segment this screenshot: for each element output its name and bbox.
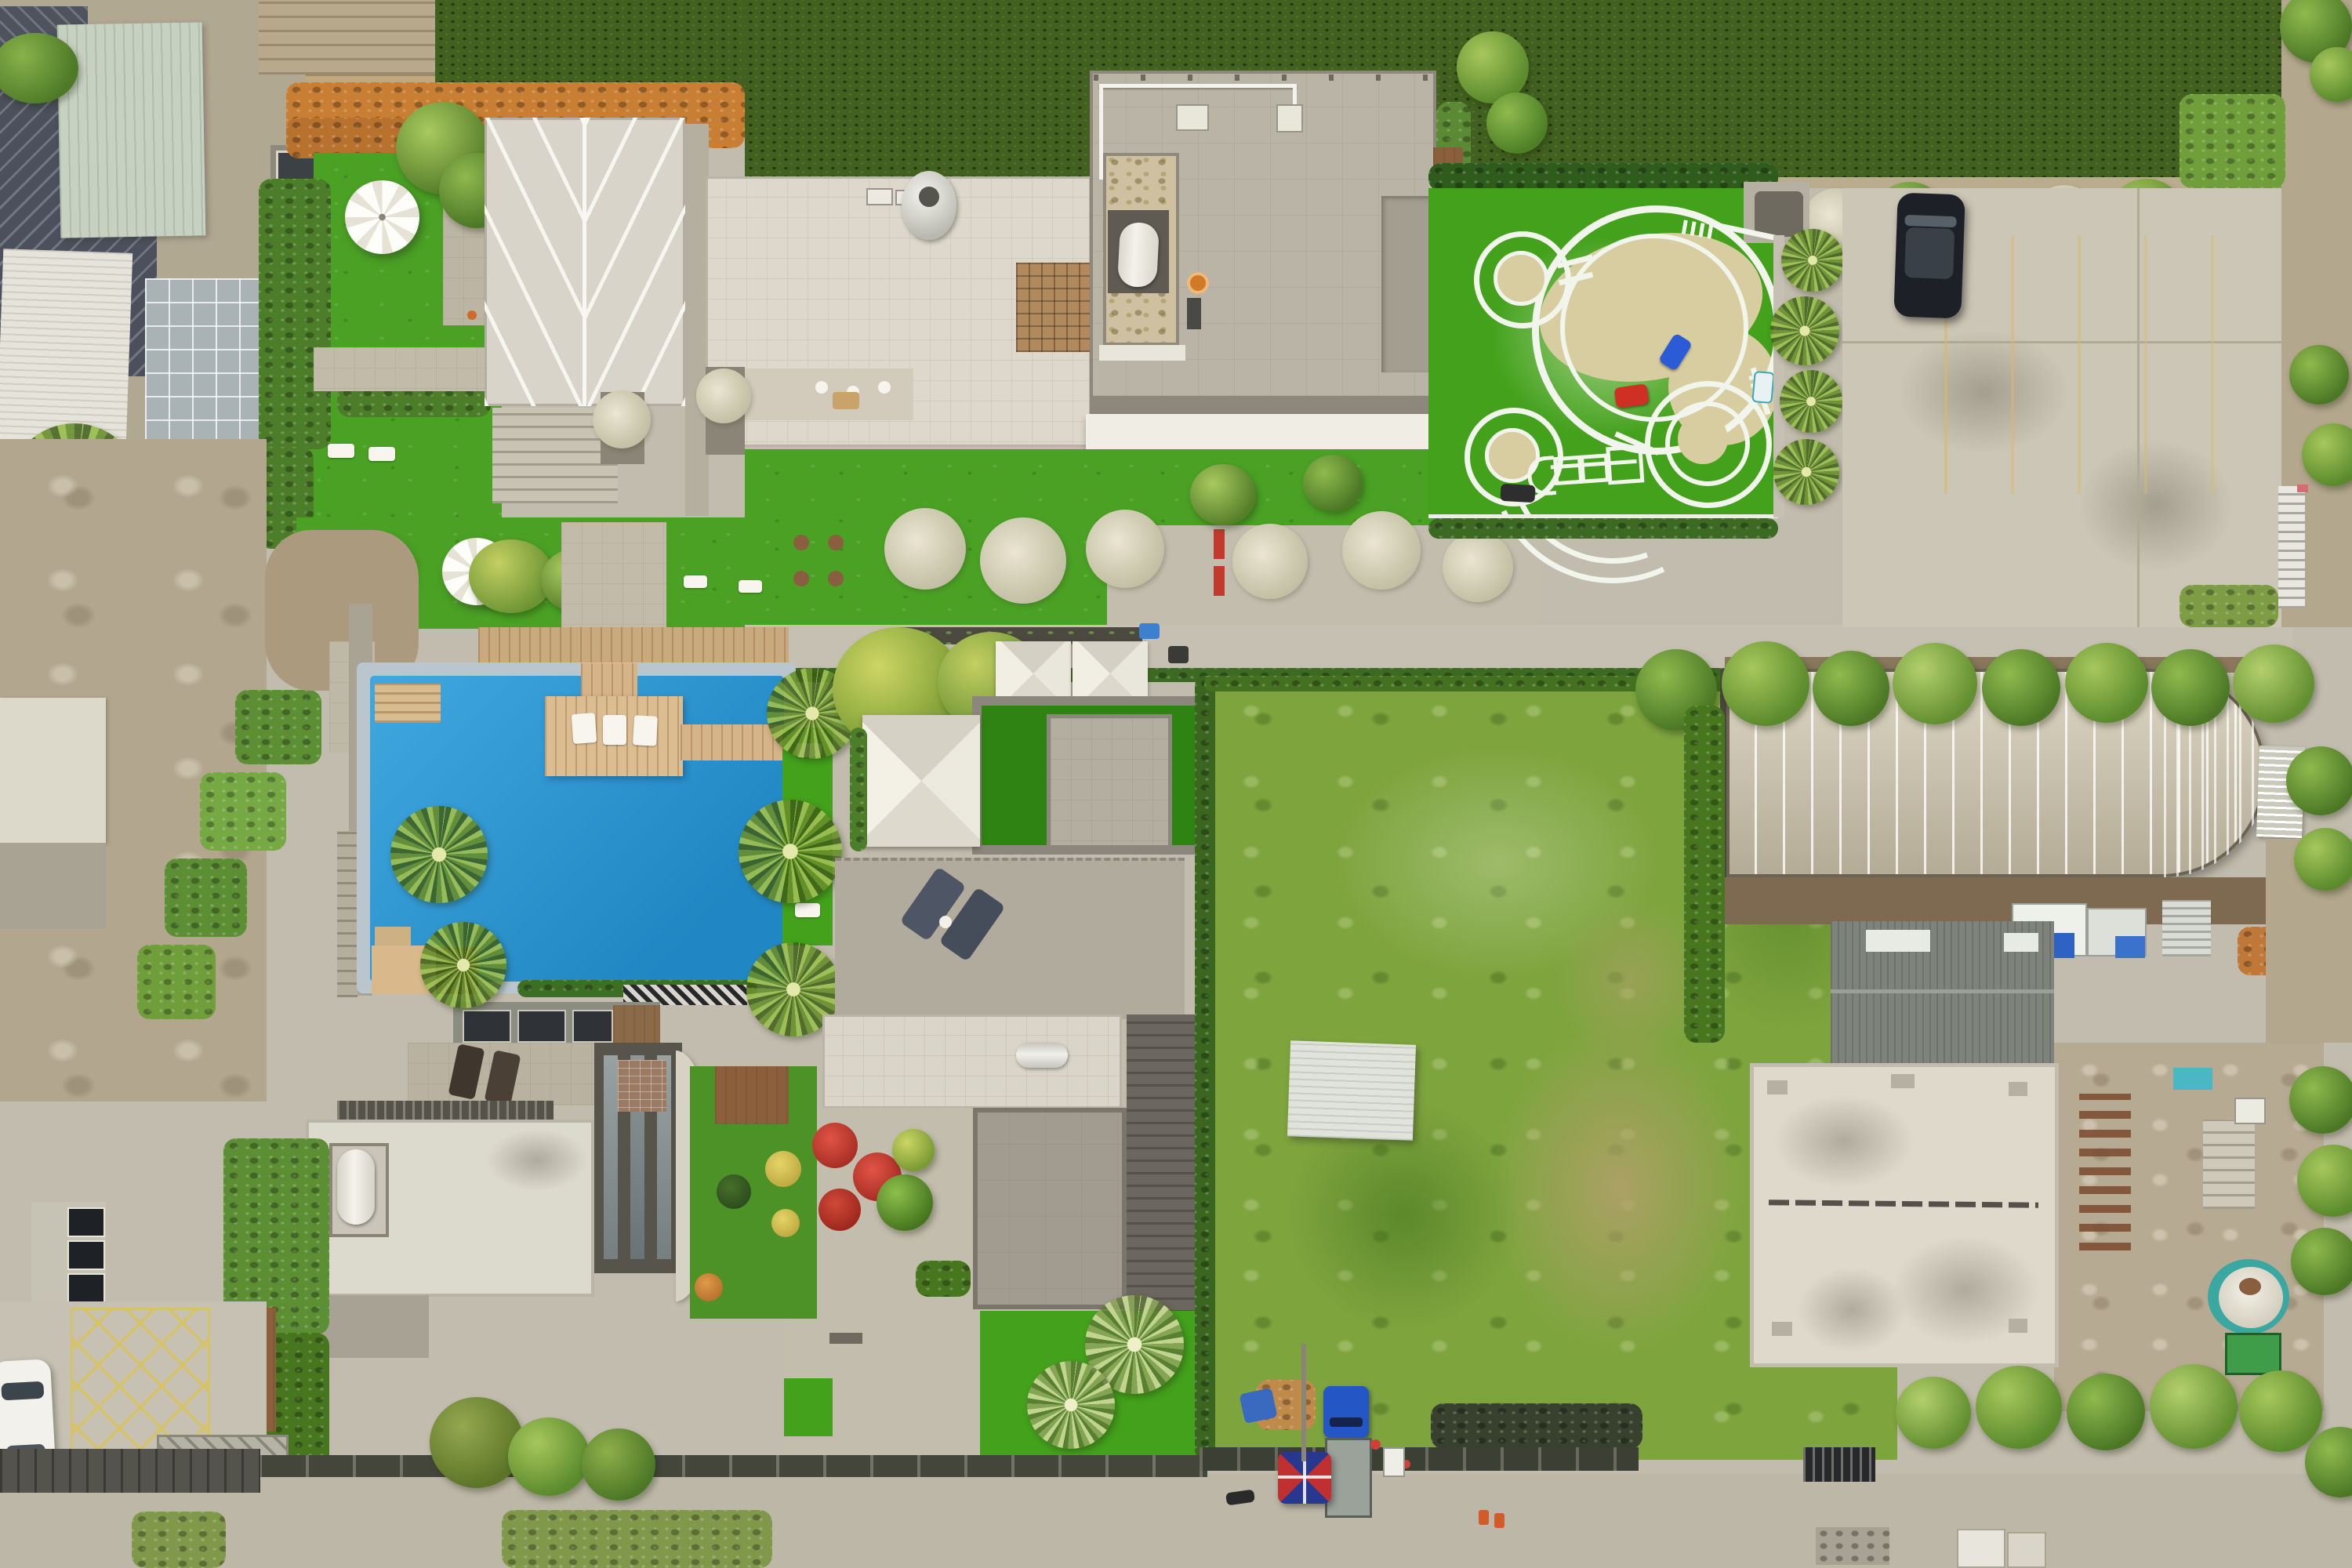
stool [878, 381, 891, 394]
red-flower-bed [818, 1189, 861, 1231]
ribbed-pavilion-roof [485, 118, 685, 406]
rubber-mat [1755, 191, 1803, 237]
red-bench [1214, 529, 1225, 559]
frame-box [1580, 453, 1610, 483]
stall-line [2078, 235, 2081, 494]
roof-ledge [1099, 345, 1185, 361]
solar-panel [463, 1010, 511, 1043]
tank-debris [2239, 1278, 2261, 1295]
bare-tree [1342, 511, 1421, 590]
pink-item [2297, 485, 2308, 492]
tree [1893, 643, 1977, 724]
stall-line [2211, 235, 2214, 494]
tiled-roof [822, 1014, 1122, 1109]
tree [1722, 641, 1809, 726]
pier-arm [681, 724, 784, 760]
white-shed-small [2007, 1532, 2046, 1568]
vent [1891, 1074, 1915, 1088]
roof-recess [1381, 196, 1433, 372]
street-weeds [502, 1510, 772, 1568]
climbing-frame [1526, 439, 1654, 496]
pavilion-ribs [585, 118, 685, 406]
solar-panel [67, 1240, 105, 1270]
tree [2233, 644, 2314, 723]
tree [2294, 828, 2352, 891]
white-wall [0, 698, 106, 843]
pipe-run [1099, 84, 1297, 88]
fence-hedge [1684, 706, 1725, 1043]
teal-tarp [2173, 1068, 2212, 1090]
tree [1190, 464, 1256, 525]
truck-cab [1323, 1386, 1369, 1438]
patio-umbrella [345, 180, 419, 254]
pool-steps [375, 684, 441, 723]
palm-tree [1770, 296, 1839, 365]
roadside-bushes [200, 772, 286, 851]
table [833, 392, 859, 409]
dark-walk [0, 1449, 260, 1493]
tree [1486, 93, 1548, 154]
tree [2067, 1374, 2145, 1450]
tree [2291, 1228, 2352, 1295]
white-corrugated-roof [0, 249, 132, 445]
parked-sedan [1893, 193, 1965, 319]
round-planter-orange [695, 1273, 723, 1301]
expansion-joint [2137, 188, 2140, 627]
picnic-table [793, 535, 809, 550]
frame-box [1553, 456, 1583, 485]
stain [1797, 1267, 1907, 1353]
playground-hedge [1428, 518, 1778, 539]
stain [486, 1129, 588, 1192]
hedge [850, 728, 867, 851]
green-crate [2225, 1333, 2281, 1375]
roof-ridge [1831, 989, 2054, 993]
stain [1897, 329, 2070, 455]
concrete-slabs [2203, 1120, 2255, 1209]
white-stack [2278, 486, 2305, 608]
drain-grate [1803, 1447, 1875, 1482]
bush [877, 1174, 933, 1231]
roadside-bushes [137, 945, 216, 1019]
expansion-joint [1842, 341, 2281, 343]
red-bench [1214, 566, 1225, 596]
white-shed [1287, 1040, 1416, 1141]
roof-bin [1187, 298, 1201, 329]
horizontal-tank [1016, 1043, 1068, 1068]
roadside-bushes [235, 690, 321, 764]
junction-box [1176, 104, 1209, 131]
round-tank [2219, 1267, 2283, 1328]
sun-lounger [572, 713, 597, 744]
window-slit [604, 1055, 618, 1259]
vent [1772, 1322, 1792, 1336]
bare-tree [1232, 524, 1308, 599]
meadow-hedge-west [1195, 676, 1215, 1460]
bare-tree [593, 390, 651, 448]
junction-box [1276, 104, 1303, 132]
hedge [259, 179, 331, 449]
bare-tree [980, 517, 1066, 604]
tree [1813, 651, 1889, 726]
round-planter-yellow [765, 1151, 801, 1187]
stool [815, 381, 828, 394]
tank-cap [919, 187, 939, 207]
truck-box [1325, 1438, 1372, 1518]
tree [1982, 649, 2060, 726]
pavilion-ribs [485, 118, 585, 406]
pipe-run [1099, 84, 1103, 180]
car-roof [1904, 227, 1955, 279]
palm-tree [390, 806, 488, 903]
brown-plant-rows [2079, 1094, 2131, 1250]
skylight-panel [2004, 933, 2038, 952]
stall-line [2011, 235, 2014, 494]
street-weeds [132, 1512, 226, 1568]
solar-panel [67, 1273, 105, 1303]
aerial-photo [0, 0, 2352, 1568]
lawn-lounger [368, 447, 395, 461]
picnic-table [828, 571, 844, 586]
lawn-lounger [328, 444, 354, 458]
brick-section [618, 1060, 666, 1112]
bench [829, 1333, 862, 1344]
white-shed-small [1957, 1529, 2005, 1568]
ac-unit [866, 188, 893, 205]
roadside-bushes [165, 858, 247, 937]
traffic-cone [1479, 1510, 1489, 1525]
bare-tree [1443, 532, 1513, 602]
solar-panel [67, 1207, 105, 1237]
wood-planter [715, 1066, 789, 1124]
tree [582, 1428, 655, 1501]
turf-patch [784, 1378, 833, 1436]
courtyard-block [1051, 718, 1168, 845]
palm-tree [1773, 439, 1839, 505]
toy-car-black [1500, 484, 1535, 503]
traffic-cone [1494, 1513, 1504, 1528]
roundabout-sand [1494, 251, 1548, 306]
roadside-green [2180, 94, 2285, 188]
side-stairs [337, 831, 358, 997]
rubble-pile [1816, 1527, 1889, 1565]
tree [2065, 643, 2148, 723]
apron-planter [916, 1261, 971, 1297]
lawn-lounger [684, 575, 707, 588]
roof-deck [835, 858, 1185, 1019]
roof-crack [1769, 1200, 2038, 1208]
round-planter-yellow [771, 1209, 800, 1237]
orange-toy [467, 310, 477, 320]
vent [2009, 1319, 2027, 1333]
tree [2151, 649, 2230, 726]
person-red [1370, 1439, 1381, 1450]
solar-panel [517, 1010, 566, 1043]
tree [2286, 746, 2352, 815]
palm-tree [420, 922, 506, 1008]
pergola-grid [1016, 263, 1090, 352]
tree [2289, 345, 2349, 405]
windshield [1, 1381, 44, 1401]
stair-strip [1127, 1014, 1199, 1312]
street-fence [1200, 1447, 1639, 1471]
solar-panel [572, 1010, 613, 1043]
paver-path [314, 347, 489, 391]
roof-edge-ticks [1094, 74, 1432, 81]
bare-tree [696, 368, 751, 423]
sun-lounger [603, 715, 626, 745]
gray-roof-b [973, 1108, 1127, 1309]
vent [1767, 1080, 1788, 1094]
tree [430, 1397, 524, 1488]
lawn-lounger [739, 580, 762, 593]
bare-tree [1086, 510, 1164, 588]
gray-roof-strip [0, 843, 106, 929]
white-sign [2234, 1098, 2266, 1124]
white-signboard [1383, 1447, 1405, 1477]
pavilion-spine [583, 118, 586, 406]
deck-table [939, 916, 952, 928]
roof-tank [337, 1149, 375, 1225]
tree [2239, 1370, 2322, 1452]
truck-windshield [1330, 1417, 1363, 1427]
red-flower-bed [812, 1123, 858, 1168]
white-tank [1117, 222, 1160, 289]
street-hedge [1431, 1403, 1642, 1449]
palm-tree [1781, 229, 1844, 292]
round-planter-dark [717, 1174, 751, 1209]
toy-car-white [1751, 371, 1774, 404]
utility-pole [1301, 1344, 1306, 1461]
orange-cable-coil [1187, 272, 1209, 294]
palm-tree [1780, 370, 1842, 433]
windshield [1904, 215, 1956, 227]
skylight-panel [1866, 930, 1930, 952]
pier-neck [581, 663, 637, 699]
picnic-table [828, 535, 844, 550]
palm-tree [1027, 1361, 1115, 1449]
pyramid-roof-large [862, 715, 980, 847]
canopy [1086, 414, 1439, 454]
vent [2009, 1082, 2027, 1096]
stone-strip [259, 0, 439, 74]
weathered-white-roof [1750, 1063, 2059, 1367]
tree [2289, 1066, 2352, 1134]
weeds [2180, 585, 2278, 627]
stall-line [2144, 235, 2147, 494]
sun-lounger [633, 715, 658, 746]
tree [1896, 1377, 1971, 1449]
bare-tree [884, 508, 966, 590]
tree [1303, 455, 1363, 511]
tree [1976, 1366, 2062, 1449]
playground-hedge [1428, 163, 1778, 191]
picnic-table [793, 571, 809, 586]
tree [508, 1417, 590, 1496]
green-metal-roof [57, 22, 206, 238]
bush [892, 1129, 935, 1171]
street-wall [259, 1455, 1207, 1477]
tree [2150, 1364, 2238, 1449]
stain [1773, 1094, 1915, 1189]
